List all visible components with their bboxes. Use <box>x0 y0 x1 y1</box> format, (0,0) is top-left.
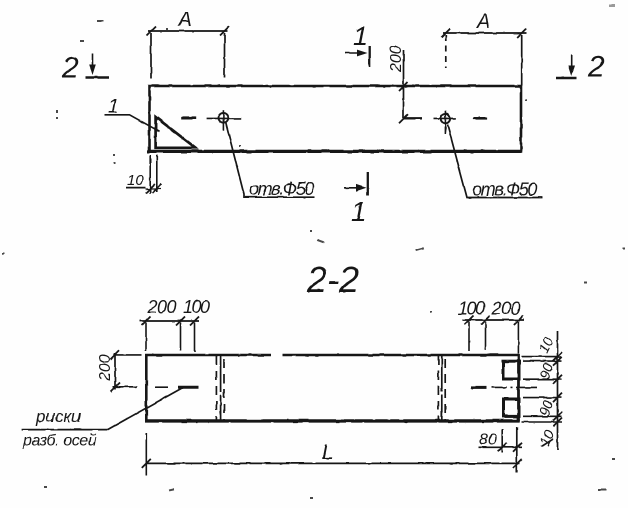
svg-text:1: 1 <box>353 21 368 51</box>
svg-text:90: 90 <box>536 361 556 381</box>
svg-text:200: 200 <box>97 354 114 382</box>
svg-text:L: L <box>322 441 334 464</box>
svg-text:отв.Ф50: отв.Ф50 <box>249 179 314 199</box>
svg-text:200: 200 <box>147 297 177 317</box>
svg-text:10: 10 <box>535 334 556 355</box>
svg-text:100: 100 <box>458 299 485 319</box>
svg-text:A: A <box>178 9 192 31</box>
svg-text:80: 80 <box>479 432 497 449</box>
svg-text:2: 2 <box>587 51 605 84</box>
svg-text:200: 200 <box>491 299 521 319</box>
svg-text:разб. осей: разб. осей <box>22 433 97 450</box>
svg-text:100: 100 <box>183 297 210 317</box>
svg-text:10: 10 <box>536 427 557 448</box>
svg-text:1: 1 <box>351 197 366 227</box>
svg-text:риски: риски <box>35 407 81 426</box>
svg-text:2: 2 <box>61 52 79 85</box>
svg-text:отв.Ф50: отв.Ф50 <box>472 180 537 200</box>
svg-text:2-2: 2-2 <box>306 259 359 300</box>
svg-text:10: 10 <box>127 172 144 189</box>
svg-text:200: 200 <box>388 45 405 73</box>
svg-text:A: A <box>476 11 490 33</box>
